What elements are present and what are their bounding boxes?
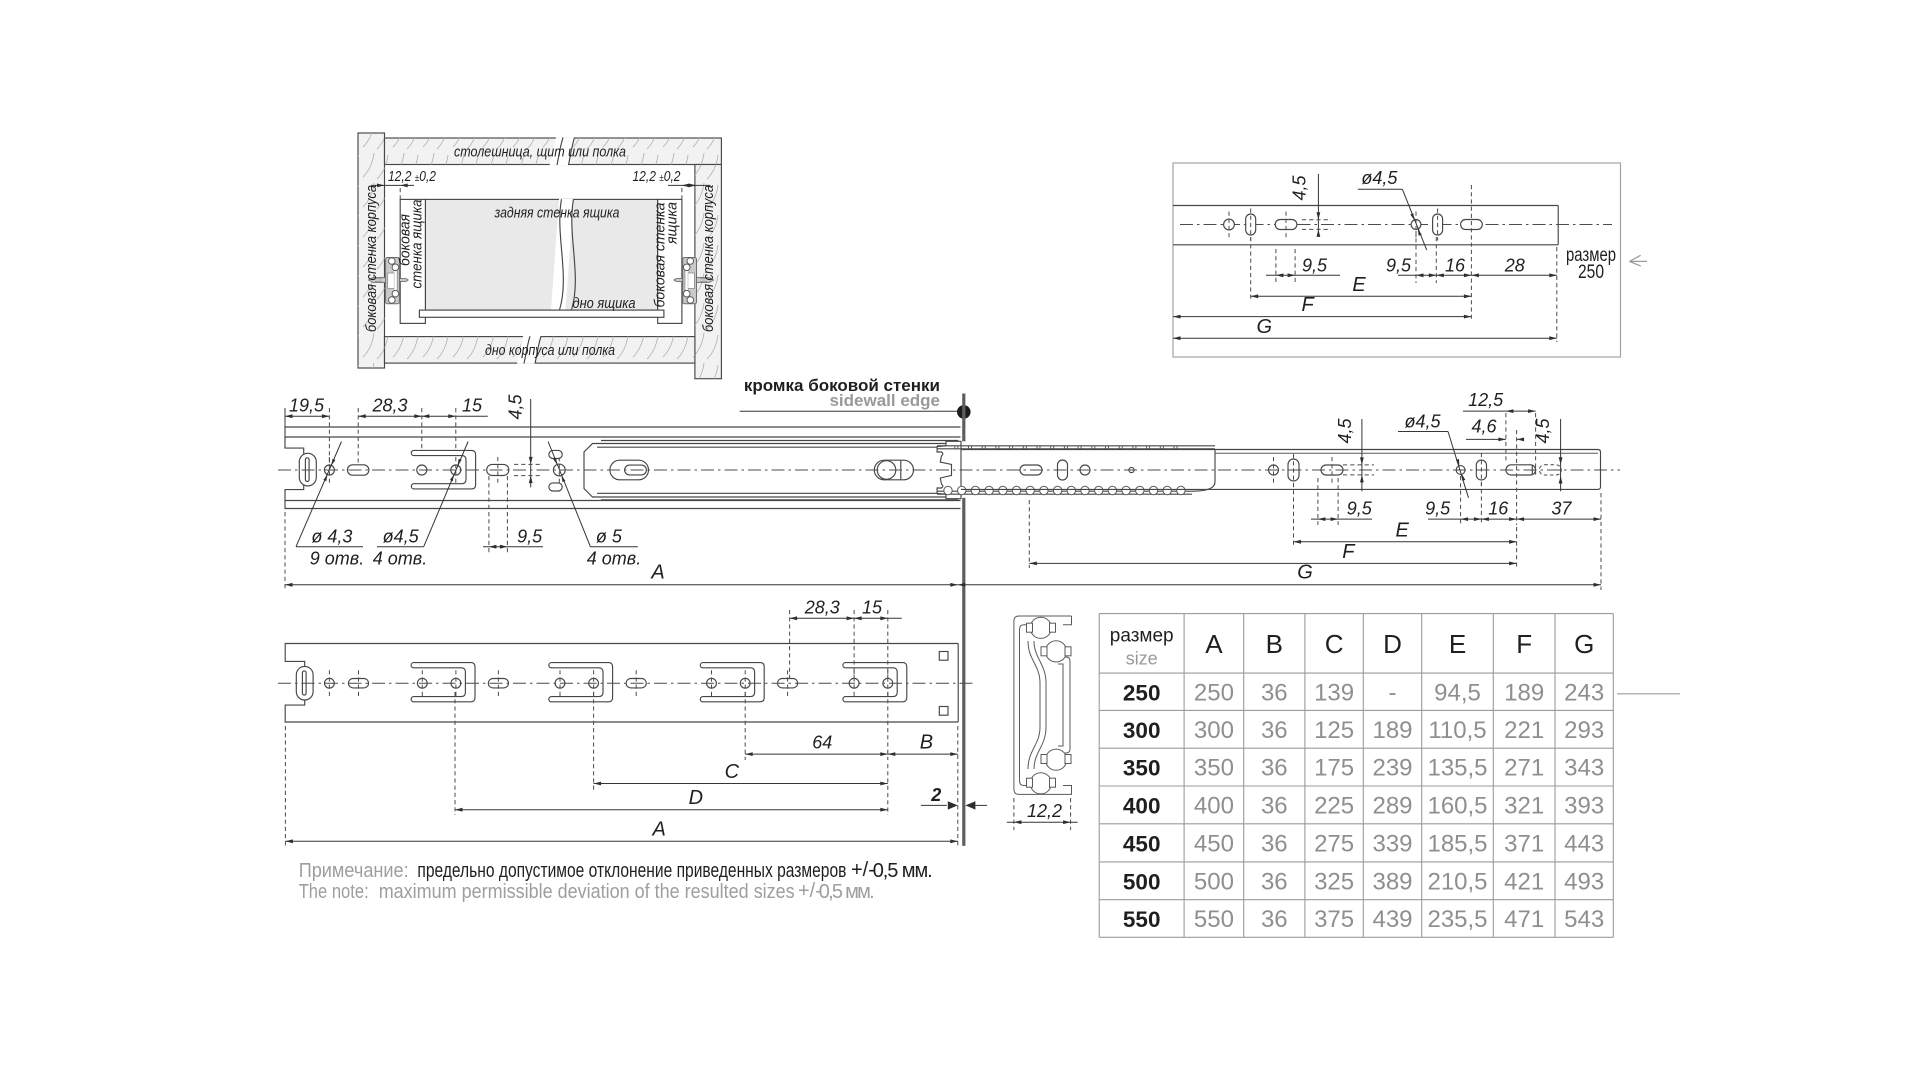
svg-text:300: 300	[1194, 717, 1234, 744]
svg-text:9,5: 9,5	[1347, 499, 1373, 519]
svg-text:471: 471	[1504, 906, 1544, 933]
svg-text:боковая стенка корпуса: боковая стенка корпуса	[364, 185, 380, 332]
svg-text:28: 28	[1504, 256, 1525, 276]
svg-text:19,5: 19,5	[289, 396, 325, 416]
svg-text:9,5: 9,5	[1386, 256, 1412, 276]
svg-text:0,5 мм.: 0,5 мм.	[819, 881, 875, 903]
svg-text:4,5: 4,5	[1290, 175, 1310, 201]
svg-text:321: 321	[1504, 793, 1544, 820]
svg-text:Примечание:: Примечание:	[299, 860, 409, 882]
svg-text:B: B	[1266, 629, 1283, 659]
svg-text:The note:: The note:	[299, 881, 369, 903]
svg-text:maximum permissible deviation: maximum permissible deviation of the res…	[379, 881, 795, 903]
svg-text:500: 500	[1123, 869, 1161, 894]
svg-text:задняя стенка ящика: задняя стенка ящика	[494, 206, 620, 222]
svg-text:A: A	[652, 819, 666, 841]
svg-text:550: 550	[1123, 907, 1161, 932]
svg-text:243: 243	[1564, 679, 1604, 706]
svg-text:371: 371	[1504, 830, 1544, 857]
svg-text:500: 500	[1194, 868, 1234, 895]
svg-text:4 отв.: 4 отв.	[587, 549, 641, 569]
svg-text:250: 250	[1578, 262, 1604, 283]
svg-text:450: 450	[1123, 831, 1161, 856]
svg-text:4,6: 4,6	[1471, 417, 1497, 437]
svg-text:493: 493	[1564, 868, 1604, 895]
svg-text:37: 37	[1551, 499, 1572, 519]
svg-text:ø4,5: ø4,5	[1361, 168, 1398, 188]
svg-text:12,2 ±0,2: 12,2 ±0,2	[388, 169, 436, 185]
svg-text:325: 325	[1314, 868, 1354, 895]
svg-text:4,5: 4,5	[1533, 418, 1553, 444]
svg-text:дно корпуса или полка: дно корпуса или полка	[485, 343, 615, 359]
svg-text:189: 189	[1372, 717, 1412, 744]
svg-text:15: 15	[862, 598, 883, 618]
svg-text:125: 125	[1314, 717, 1354, 744]
svg-text:28,3: 28,3	[371, 396, 407, 416]
svg-text:339: 339	[1372, 830, 1412, 857]
svg-text:E: E	[1396, 520, 1410, 542]
svg-text:450: 450	[1194, 830, 1234, 857]
svg-text:64: 64	[812, 733, 832, 753]
svg-text:439: 439	[1372, 906, 1412, 933]
svg-text:293: 293	[1564, 717, 1604, 744]
svg-text:36: 36	[1261, 793, 1288, 820]
svg-text:36: 36	[1261, 717, 1288, 744]
svg-text:F: F	[1342, 541, 1356, 563]
svg-text:36: 36	[1261, 868, 1288, 895]
svg-text:sidewall edge: sidewall edge	[829, 391, 940, 410]
svg-text:389: 389	[1372, 868, 1412, 895]
svg-text:443: 443	[1564, 830, 1604, 857]
svg-text:289: 289	[1372, 793, 1412, 820]
svg-text:221: 221	[1504, 717, 1544, 744]
svg-text:393: 393	[1564, 793, 1604, 820]
svg-text:F: F	[1301, 294, 1315, 316]
svg-text:G: G	[1257, 316, 1273, 338]
svg-text:ящика: ящика	[665, 202, 681, 245]
svg-text:9,5: 9,5	[517, 527, 543, 547]
svg-text:250: 250	[1123, 680, 1161, 705]
svg-text:421: 421	[1504, 868, 1544, 895]
svg-text:стенка ящика: стенка ящика	[410, 200, 426, 289]
svg-text:271: 271	[1504, 755, 1544, 782]
svg-text:size: size	[1126, 649, 1158, 669]
svg-text:боковая стенка корпуса: боковая стенка корпуса	[701, 185, 717, 332]
svg-text:4 отв.: 4 отв.	[373, 549, 427, 569]
svg-text:2: 2	[930, 785, 941, 805]
svg-text:36: 36	[1261, 830, 1288, 857]
svg-text:135,5: 135,5	[1427, 755, 1487, 782]
svg-text:12,5: 12,5	[1468, 390, 1504, 410]
svg-text:ø 4,3: ø 4,3	[311, 527, 352, 547]
svg-text:350: 350	[1194, 755, 1234, 782]
svg-text:B: B	[920, 732, 933, 754]
svg-text:36: 36	[1261, 755, 1288, 782]
svg-text:210,5: 210,5	[1427, 868, 1487, 895]
svg-text:9 отв.: 9 отв.	[310, 549, 364, 569]
svg-text:9,5: 9,5	[1425, 499, 1451, 519]
svg-text:175: 175	[1314, 755, 1354, 782]
svg-text:185,5: 185,5	[1427, 830, 1487, 857]
svg-text:110,5: 110,5	[1428, 717, 1486, 744]
svg-text:4,5: 4,5	[506, 394, 526, 420]
svg-text:400: 400	[1194, 793, 1234, 820]
svg-text:189: 189	[1504, 679, 1544, 706]
svg-text:343: 343	[1564, 755, 1604, 782]
svg-text:+/-: +/-	[851, 859, 875, 881]
svg-text:A: A	[1205, 629, 1223, 659]
svg-text:G: G	[1574, 629, 1594, 659]
svg-text:D: D	[1383, 629, 1402, 659]
svg-text:ø 5: ø 5	[596, 527, 623, 547]
svg-text:4,5: 4,5	[1335, 418, 1355, 444]
svg-text:предельно допустимое отклонени: предельно допустимое отклонение приведен…	[417, 860, 846, 882]
svg-text:0,5 мм.: 0,5 мм.	[873, 860, 933, 882]
svg-text:12,2: 12,2	[1027, 801, 1062, 821]
svg-text:160,5: 160,5	[1427, 793, 1487, 820]
svg-text:12,2 ±0,2: 12,2 ±0,2	[633, 169, 681, 185]
svg-text:139: 139	[1314, 679, 1354, 706]
svg-text:-: -	[1389, 679, 1397, 706]
svg-text:дно ящика: дно ящика	[573, 296, 636, 312]
svg-text:A: A	[650, 562, 664, 584]
svg-text:16: 16	[1445, 256, 1466, 276]
svg-text:F: F	[1516, 629, 1532, 659]
svg-text:300: 300	[1123, 718, 1161, 743]
svg-text:28,3: 28,3	[804, 598, 840, 618]
svg-text:E: E	[1449, 629, 1466, 659]
svg-text:E: E	[1352, 274, 1366, 296]
svg-text:16: 16	[1488, 499, 1509, 519]
svg-text:250: 250	[1194, 679, 1234, 706]
svg-text:ø4,5: ø4,5	[383, 527, 420, 547]
svg-text:15: 15	[462, 396, 483, 416]
svg-text:235,5: 235,5	[1427, 906, 1487, 933]
svg-text:400: 400	[1123, 794, 1161, 819]
svg-text:размер: размер	[1110, 626, 1174, 647]
svg-text:239: 239	[1372, 755, 1412, 782]
svg-text:225: 225	[1314, 793, 1354, 820]
svg-text:G: G	[1297, 562, 1313, 584]
svg-text:375: 375	[1314, 906, 1354, 933]
svg-text:275: 275	[1314, 830, 1354, 857]
svg-text:36: 36	[1261, 906, 1288, 933]
svg-text:94,5: 94,5	[1434, 679, 1481, 706]
svg-text:C: C	[1325, 629, 1344, 659]
svg-text:543: 543	[1564, 906, 1604, 933]
svg-text:C: C	[725, 761, 740, 783]
svg-text:36: 36	[1261, 679, 1288, 706]
svg-text:столешница, щит или полка: столешница, щит или полка	[454, 145, 626, 161]
svg-text:D: D	[689, 787, 703, 809]
svg-text:550: 550	[1194, 906, 1234, 933]
svg-text:350: 350	[1123, 756, 1161, 781]
svg-text:ø4,5: ø4,5	[1404, 412, 1441, 432]
svg-text:9,5: 9,5	[1302, 256, 1328, 276]
